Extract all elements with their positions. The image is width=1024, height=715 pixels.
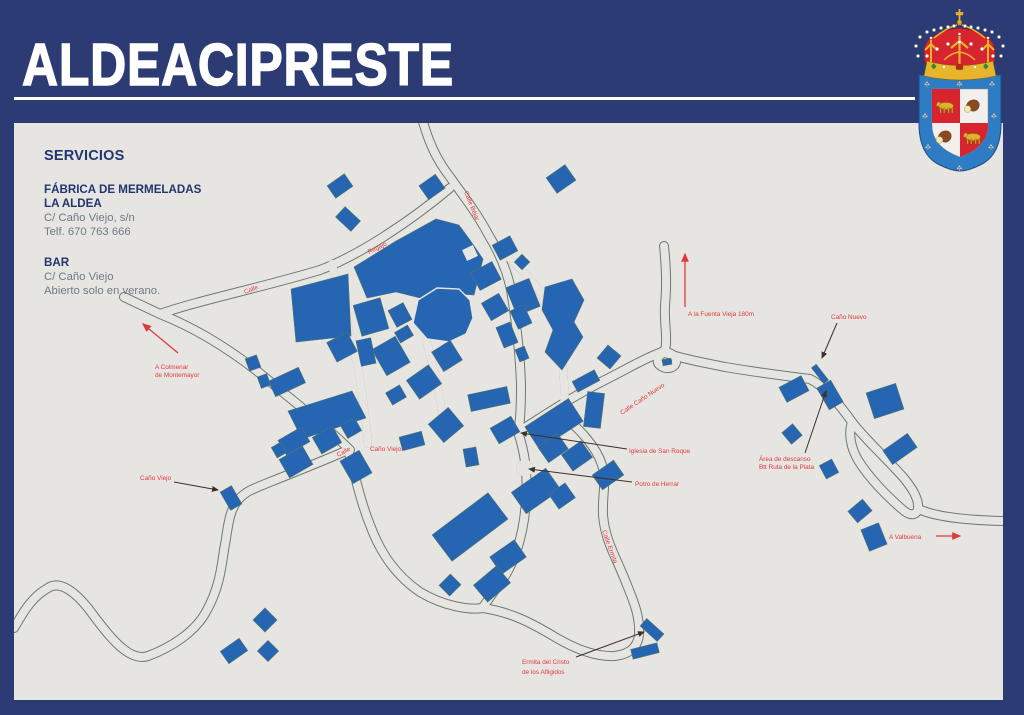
svg-text:Área de descanso: Área de descanso — [759, 454, 811, 463]
svg-text:A Valbuena: A Valbuena — [889, 534, 922, 541]
svg-text:A la Fuenta Vieja 180m: A la Fuenta Vieja 180m — [688, 311, 754, 318]
svg-text:Caño Viejo: Caño Viejo — [370, 446, 402, 453]
svg-text:A Colmenar: A Colmenar — [155, 364, 189, 371]
svg-text:Ermita del Cristo: Ermita del Cristo — [522, 659, 570, 666]
svg-text:Iglesia de San Roque: Iglesia de San Roque — [629, 448, 691, 455]
svg-text:Potro de Herrar: Potro de Herrar — [635, 481, 680, 488]
svg-text:Btt Ruta de la Plata: Btt Ruta de la Plata — [759, 464, 815, 471]
svg-text:de Montemayor: de Montemayor — [155, 372, 200, 379]
svg-text:Caño Viejo: Caño Viejo — [140, 475, 172, 482]
svg-text:Caño Nuevo: Caño Nuevo — [831, 314, 867, 321]
svg-text:de los Afligidos: de los Afligidos — [522, 669, 565, 676]
